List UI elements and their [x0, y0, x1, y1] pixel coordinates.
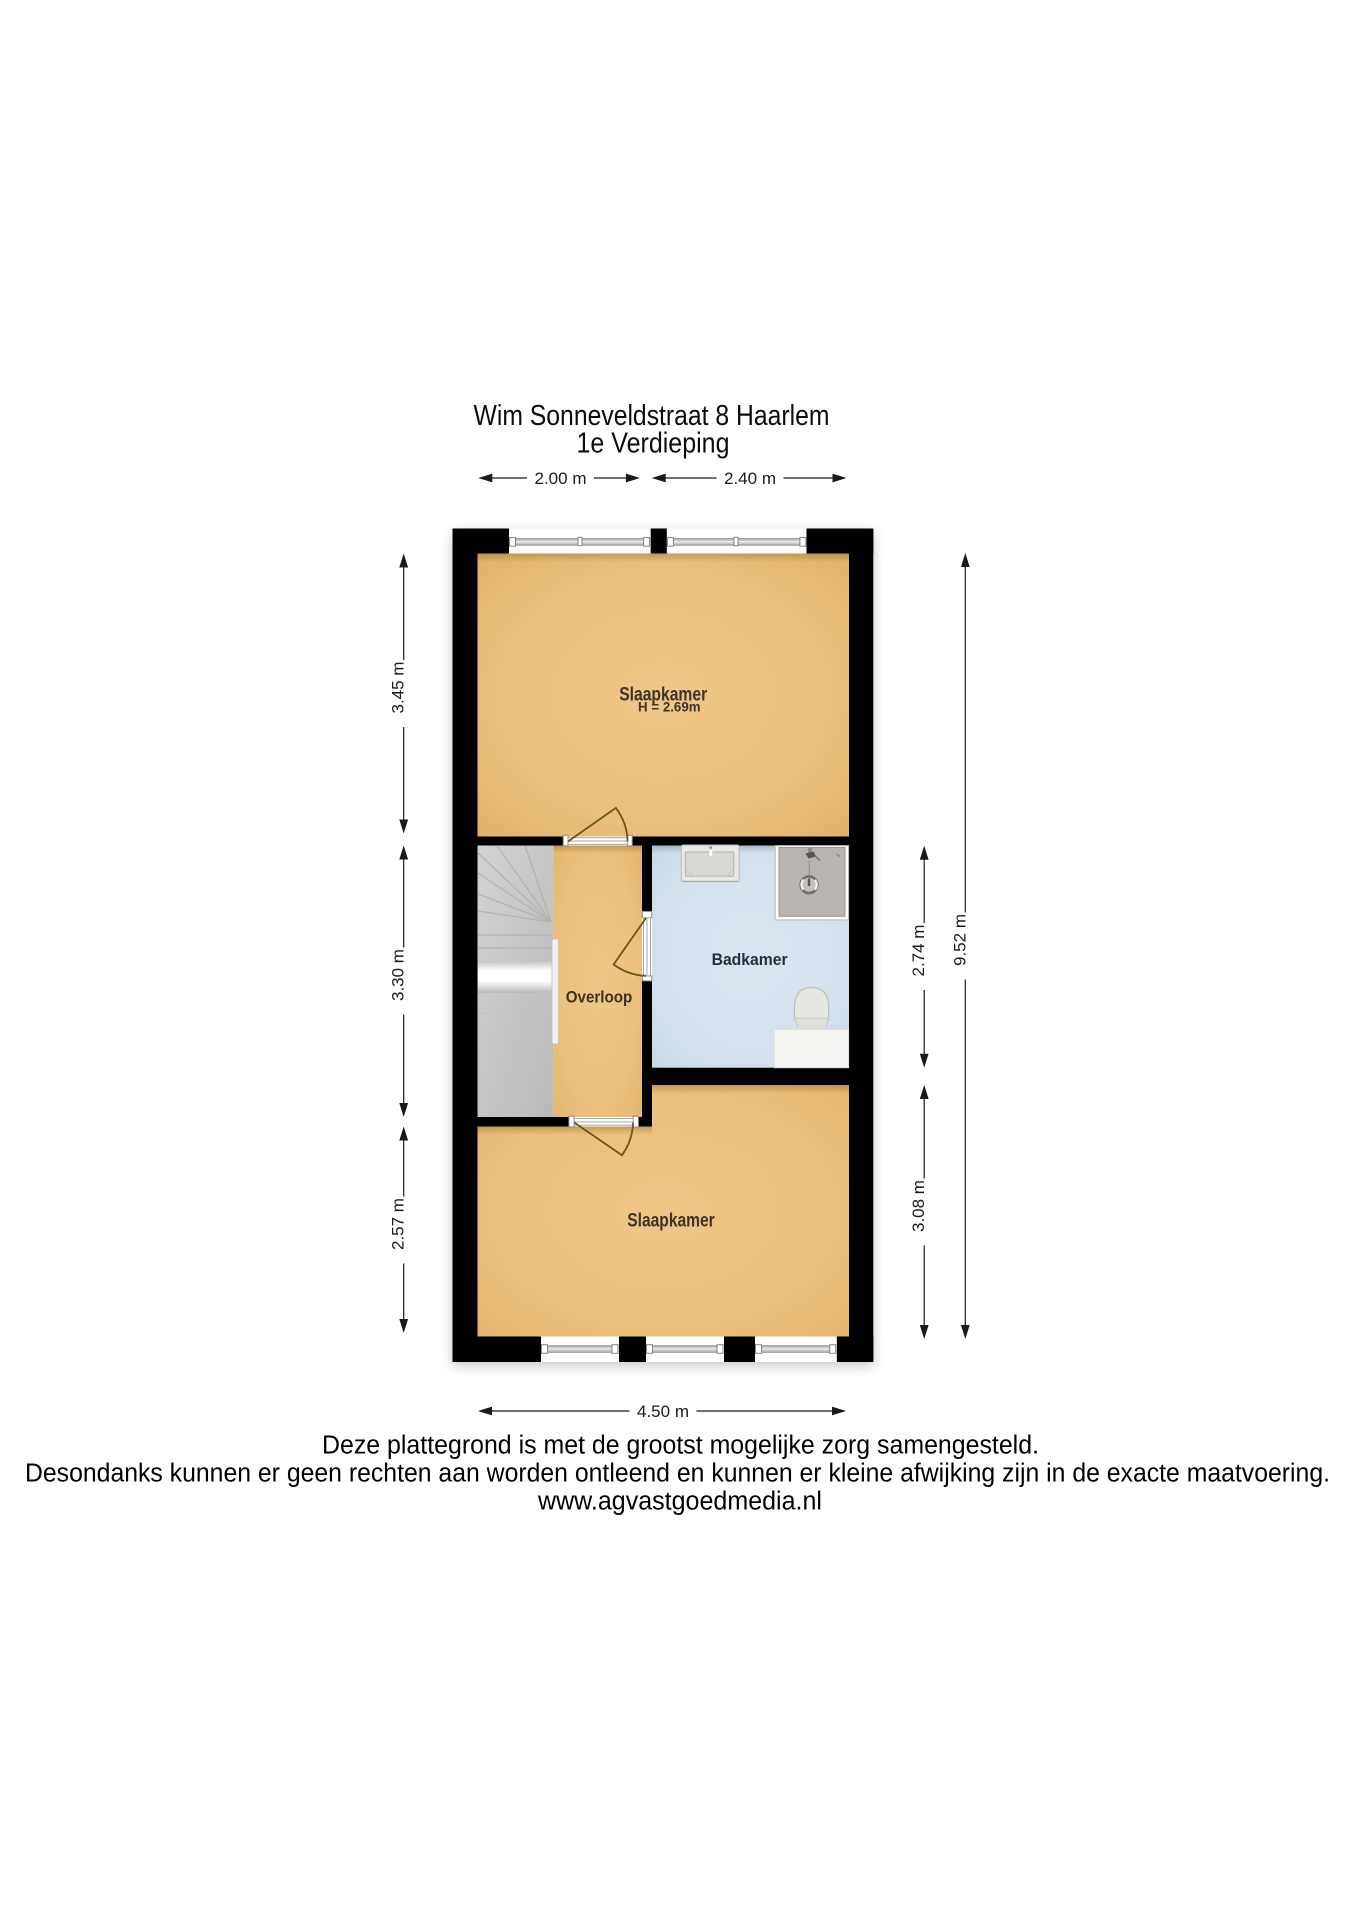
svg-text:4.50 m: 4.50 m	[637, 1402, 689, 1421]
svg-text:Slaapkamer: Slaapkamer	[627, 1210, 715, 1232]
svg-text:Deze plattegrond is met de gro: Deze plattegrond is met de grootst mogel…	[322, 1432, 1039, 1460]
svg-text:3.08 m: 3.08 m	[909, 1180, 928, 1232]
svg-text:H = 2.69m: H = 2.69m	[638, 699, 701, 715]
svg-text:2.74 m: 2.74 m	[909, 925, 928, 977]
svg-text:2.00 m: 2.00 m	[535, 469, 587, 488]
svg-text:www.agvastgoedmedia.nl: www.agvastgoedmedia.nl	[537, 1488, 822, 1516]
svg-text:1e Verdieping: 1e Verdieping	[577, 428, 730, 460]
svg-text:3.30 m: 3.30 m	[389, 949, 408, 1001]
svg-text:Desondanks kunnen er geen rech: Desondanks kunnen er geen rechten aan wo…	[25, 1460, 1330, 1488]
svg-text:Badkamer: Badkamer	[712, 951, 789, 969]
svg-text:9.52 m: 9.52 m	[950, 914, 969, 966]
svg-text:2.40 m: 2.40 m	[724, 469, 776, 488]
svg-text:2.57 m: 2.57 m	[389, 1198, 408, 1250]
svg-text:Overloop: Overloop	[566, 988, 633, 1007]
svg-text:3.45 m: 3.45 m	[389, 662, 408, 714]
